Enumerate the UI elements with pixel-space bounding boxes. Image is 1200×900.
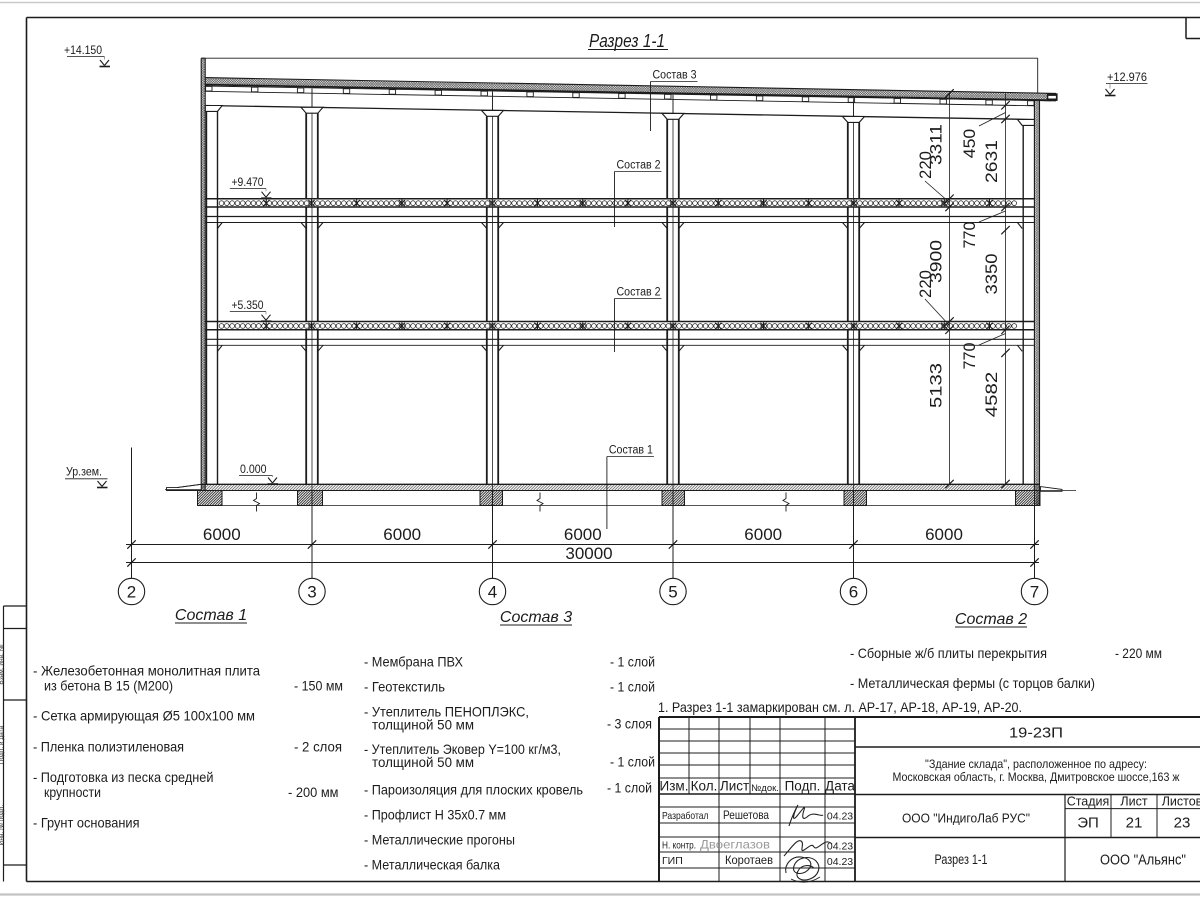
- svg-text:220: 220: [916, 270, 935, 298]
- svg-text:- Сетка армирующая Ø5 100х100: - Сетка армирующая Ø5 100х100 мм: [33, 707, 255, 723]
- svg-text:Инв. № подл.: Инв. № подл.: [0, 805, 5, 846]
- svg-text:Н. контр.: Н. контр.: [662, 840, 696, 852]
- svg-text:- 220 мм: - 220 мм: [1115, 645, 1162, 661]
- svg-text:- 1 слой: - 1 слой: [607, 779, 652, 795]
- svg-text:- 2 слоя: - 2 слоя: [294, 738, 342, 754]
- svg-text:6000: 6000: [925, 525, 963, 544]
- svg-text:4582: 4582: [982, 372, 1001, 418]
- svg-text:Состав 1: Состав 1: [609, 445, 653, 457]
- svg-text:№док.: №док.: [751, 783, 779, 794]
- svg-text:- Профлист Н 35х0.7 мм: - Профлист Н 35х0.7 мм: [364, 806, 506, 822]
- svg-text:1. Разрез 1-1 замаркирован см.: 1. Разрез 1-1 замаркирован см. л. АР-17,…: [658, 699, 1022, 715]
- svg-text:6000: 6000: [383, 525, 421, 544]
- svg-text:Изм.: Изм.: [660, 779, 689, 794]
- svg-text:+12.976: +12.976: [1107, 72, 1147, 84]
- svg-text:ООО "ИндигоЛаб РУС": ООО "ИндигоЛаб РУС": [902, 811, 1030, 826]
- svg-text:6000: 6000: [564, 525, 602, 544]
- svg-text:Состав 2: Состав 2: [617, 287, 661, 299]
- svg-text:Состав 1: Состав 1: [175, 607, 247, 624]
- svg-text:- Геотекстиль: - Геотекстиль: [364, 678, 445, 694]
- svg-text:+5.350: +5.350: [232, 300, 264, 312]
- svg-text:- Металлическая фермы (с торцо: - Металлическая фермы (с торцов балки): [850, 675, 1095, 691]
- svg-text:Московская область, г. Москва,: Московская область, г. Москва, Дмитровск…: [893, 770, 1180, 784]
- svg-text:220: 220: [916, 151, 935, 179]
- svg-text:- 200 мм: - 200 мм: [288, 784, 339, 800]
- svg-text:ЭП: ЭП: [1077, 815, 1099, 832]
- svg-text:5: 5: [668, 583, 677, 602]
- svg-text:- 1 слой: - 1 слой: [610, 678, 655, 694]
- svg-text:19-23П: 19-23П: [1009, 725, 1063, 742]
- svg-text:+14.150: +14.150: [64, 45, 102, 57]
- svg-text:- Сборные ж/б плиты перекрытия: - Сборные ж/б плиты перекрытия: [850, 645, 1047, 661]
- svg-text:04.23: 04.23: [827, 841, 853, 853]
- svg-text:- Пленка полиэтиленовая: - Пленка полиэтиленовая: [33, 738, 184, 754]
- svg-text:4: 4: [488, 583, 497, 602]
- svg-text:30000: 30000: [565, 544, 612, 563]
- svg-text:Подп. и дата: Подп. и дата: [0, 725, 5, 764]
- svg-text:Лист: Лист: [1120, 795, 1147, 809]
- svg-text:3350: 3350: [982, 254, 1001, 295]
- svg-text:ООО "Альянс": ООО "Альянс": [1100, 853, 1186, 869]
- svg-text:Разрез 1-1: Разрез 1-1: [935, 852, 988, 867]
- svg-text:Стадия: Стадия: [1067, 795, 1110, 809]
- svg-text:770: 770: [960, 222, 979, 249]
- svg-text:- Пароизоляция для плоских кро: - Пароизоляция для плоских кровель: [364, 781, 583, 797]
- svg-text:- 150 мм: - 150 мм: [294, 677, 343, 693]
- svg-text:2631: 2631: [982, 140, 1001, 183]
- svg-text:450: 450: [960, 129, 979, 159]
- svg-text:Состав 2: Состав 2: [955, 611, 1027, 628]
- svg-text:крупности: крупности: [44, 784, 101, 800]
- svg-text:- Металлические прогоны: - Металлические прогоны: [364, 831, 515, 847]
- svg-text:Решетова: Решетова: [723, 808, 769, 822]
- svg-text:Лист: Лист: [720, 779, 749, 794]
- svg-text:- 1 слой: - 1 слой: [610, 653, 655, 669]
- svg-text:Дата: Дата: [825, 779, 855, 794]
- svg-text:- Мембрана ПВХ: - Мембрана ПВХ: [364, 653, 464, 669]
- svg-text:21: 21: [1126, 815, 1143, 832]
- svg-text:3: 3: [307, 583, 316, 602]
- svg-text:Листов: Листов: [1162, 795, 1200, 809]
- svg-text:Состав 3: Состав 3: [500, 609, 572, 626]
- svg-text:6: 6: [849, 583, 858, 602]
- svg-text:6000: 6000: [744, 525, 782, 544]
- svg-text:Состав 2: Состав 2: [617, 160, 661, 172]
- svg-text:Ур.зем.: Ур.зем.: [66, 465, 102, 479]
- svg-text:- 1 слой: - 1 слой: [610, 753, 655, 769]
- svg-text:толщиной 50 мм: толщиной 50 мм: [372, 716, 474, 732]
- svg-text:770: 770: [960, 343, 979, 370]
- svg-text:7: 7: [1030, 583, 1039, 602]
- svg-text:Двоеглазов: Двоеглазов: [700, 838, 770, 852]
- svg-text:- Железобетонная монолитная п: - Железобетонная монолитная плита: [33, 662, 260, 678]
- svg-text:ГИП: ГИП: [662, 855, 683, 867]
- svg-text:5133: 5133: [927, 363, 946, 408]
- svg-text:из бетона В 15 (М200): из бетона В 15 (М200): [44, 677, 173, 693]
- svg-text:2: 2: [127, 583, 136, 602]
- svg-text:Разрез 1-1: Разрез 1-1: [589, 31, 665, 51]
- svg-text:- Подготовка из песка средней: - Подготовка из песка средней: [33, 769, 214, 785]
- svg-text:Состав 3: Состав 3: [653, 70, 697, 82]
- svg-text:6000: 6000: [203, 525, 241, 544]
- svg-text:Коротаев: Коротаев: [725, 853, 773, 867]
- svg-text:Взам. инв. №: Взам. инв. №: [0, 644, 5, 684]
- svg-text:- 3 слоя: - 3 слоя: [607, 715, 652, 731]
- svg-text:04.23: 04.23: [827, 856, 853, 868]
- svg-text:Подп.: Подп.: [785, 779, 821, 794]
- svg-text:- Металлическая балка: - Металлическая балка: [364, 856, 500, 872]
- svg-text:04.23: 04.23: [827, 811, 853, 823]
- svg-text:Кол.: Кол.: [691, 779, 718, 794]
- svg-text:Разработал: Разработал: [662, 810, 709, 822]
- svg-text:0.000: 0.000: [240, 464, 267, 476]
- svg-text:"Здание склада", расположенное: "Здание склада", расположенное по адресу…: [925, 757, 1147, 771]
- svg-text:+9.470: +9.470: [232, 177, 264, 189]
- svg-text:толщиной 50 мм: толщиной 50 мм: [372, 754, 474, 770]
- svg-text:23: 23: [1174, 815, 1191, 832]
- svg-text:- Грунт основания: - Грунт основания: [33, 814, 140, 830]
